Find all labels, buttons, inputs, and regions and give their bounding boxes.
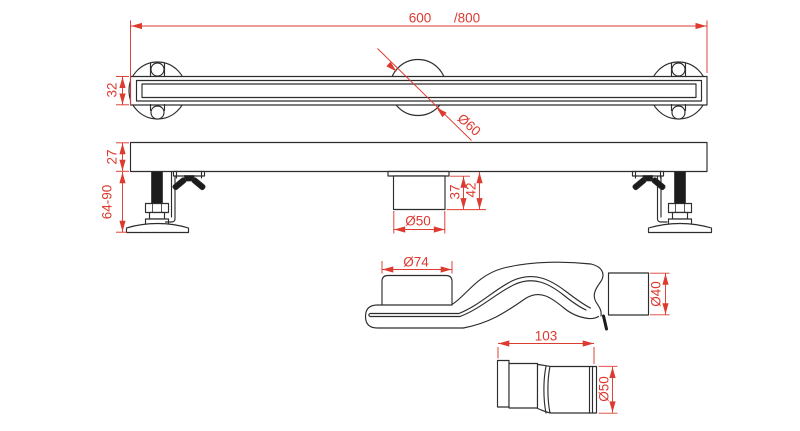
dim-label-siphon-inlet: Ø74 (403, 255, 429, 269)
top-view (129, 60, 707, 120)
dim-label-connector-diameter: Ø50 (597, 376, 611, 402)
foot-base-disc (649, 224, 712, 233)
siphon-view (366, 262, 649, 329)
seal-tail-mark (604, 316, 607, 329)
connector-end-ring (498, 361, 510, 408)
outlet-stub (394, 176, 446, 210)
dim-label-channel-height: 32 (105, 82, 119, 97)
siphon-base-seam (369, 314, 460, 317)
outlet-collar (388, 172, 449, 177)
threaded-rod (675, 172, 686, 205)
drain-body (131, 143, 708, 172)
drawing-linework (0, 0, 800, 431)
connector-view (498, 361, 597, 414)
siphon-inlet-cup (382, 276, 452, 306)
dim-label-body-height: 27 (105, 149, 119, 164)
dim-label-foot-range: 64-90 (100, 185, 114, 220)
dim-label-top-length-alt: /800 (454, 11, 480, 25)
connector-right-body (538, 365, 597, 414)
dim-foot-range (116, 172, 127, 232)
channel-grate (142, 84, 696, 98)
siphon-pipe-top (452, 262, 603, 316)
threaded-rod (152, 172, 163, 205)
siphon-outlet-cylinder (609, 273, 649, 315)
left-adjustable-foot (127, 172, 207, 233)
dim-label-connector-length: 103 (535, 329, 558, 343)
dim-label-outlet-diameter: Ø50 (405, 214, 431, 228)
connector-left-tube (509, 364, 538, 409)
dim-label-outlet-total: 42 (464, 182, 478, 197)
dim-label-siphon-outlet: Ø40 (649, 281, 663, 307)
dim-label-outlet-partial: 37 (448, 184, 462, 199)
dim-label-top-length: 600 (409, 11, 432, 25)
mounting-strap (166, 172, 176, 223)
right-adjustable-foot (632, 172, 712, 233)
siphon-pipe-mid1 (459, 277, 591, 314)
outlet-pipe (388, 172, 449, 210)
dim-connector-length (498, 340, 594, 364)
mounting-strap (658, 172, 668, 223)
foot-base-disc (127, 224, 189, 233)
technical-drawing: 600 /800 32 Ø60 27 64-90 37 42 Ø50 Ø74 Ø… (0, 0, 800, 431)
